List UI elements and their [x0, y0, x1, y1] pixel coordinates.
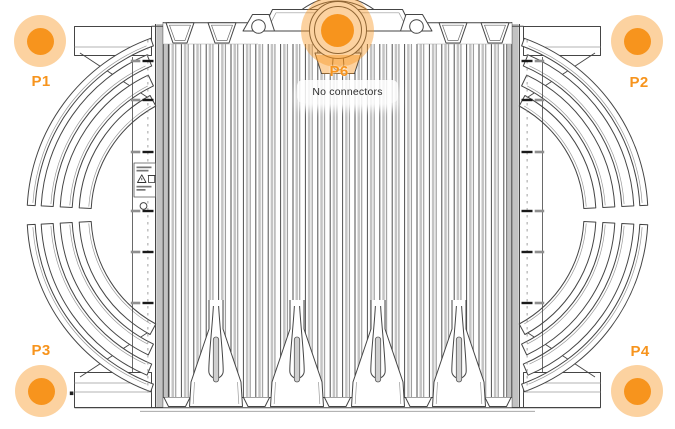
marker-p3[interactable]	[15, 365, 67, 417]
marker-p6-dot	[321, 14, 354, 47]
mount-hole-right	[410, 20, 424, 34]
marker-p2[interactable]	[611, 15, 663, 67]
label-hole	[140, 203, 147, 210]
marker-p2-label: P2	[630, 74, 649, 91]
marker-p4[interactable]	[611, 365, 663, 417]
marker-p1[interactable]	[14, 15, 66, 67]
marker-p1-label: P1	[32, 73, 51, 90]
marker-p2-dot	[624, 28, 651, 55]
marker-p1-dot	[27, 28, 54, 55]
screenshot-canvas: P1 P2 P3 P4 P6 No connectors	[0, 0, 675, 429]
marker-p6-label: P6	[330, 63, 349, 80]
marker-p4-label: P4	[631, 343, 650, 360]
marker-p3-dot	[28, 378, 55, 405]
mount-hole-left	[252, 20, 266, 34]
marker-p3-label: P3	[32, 342, 51, 359]
reference-dot	[70, 392, 74, 396]
marker-p4-dot	[624, 378, 651, 405]
no-connectors-tooltip: No connectors	[297, 80, 398, 103]
product-label	[134, 163, 156, 209]
